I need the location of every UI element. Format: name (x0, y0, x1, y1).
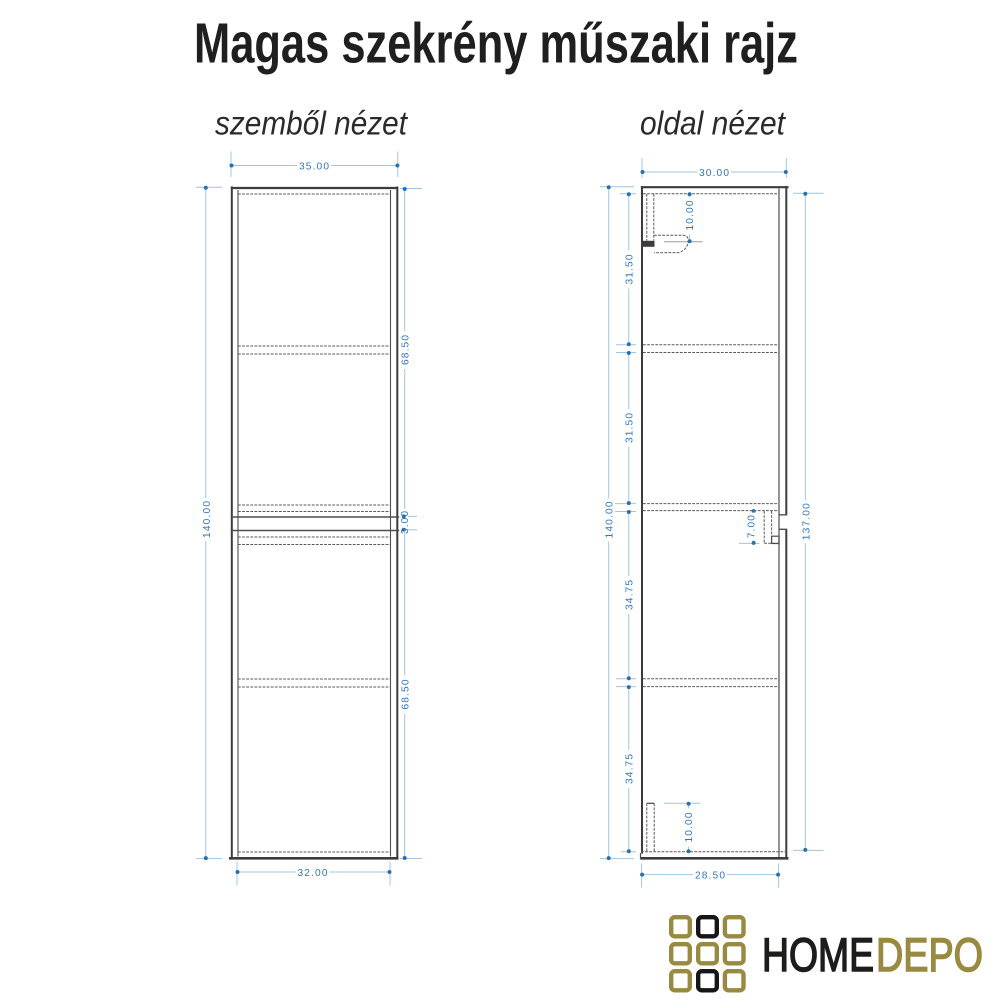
svg-text:34.75: 34.75 (624, 580, 635, 610)
svg-text:31.50: 31.50 (624, 413, 635, 443)
svg-text:140.00: 140.00 (202, 501, 213, 538)
svg-text:oldal nézet: oldal nézet (640, 105, 787, 142)
svg-text:32.00: 32.00 (298, 868, 328, 879)
svg-text:10.00: 10.00 (685, 200, 696, 230)
svg-text:31.50: 31.50 (624, 254, 635, 284)
svg-text:35.00: 35.00 (299, 162, 329, 173)
svg-text:68.50: 68.50 (401, 335, 412, 365)
svg-text:10.00: 10.00 (684, 812, 695, 842)
svg-text:30.00: 30.00 (699, 168, 729, 179)
svg-text:28.50: 28.50 (695, 871, 725, 882)
svg-text:137.00: 137.00 (801, 503, 812, 540)
svg-text:7.00: 7.00 (747, 515, 758, 538)
svg-text:DEPO: DEPO (876, 928, 983, 981)
svg-text:34.75: 34.75 (624, 754, 635, 784)
svg-text:szemből nézet: szemből nézet (215, 105, 409, 142)
svg-text:68.50: 68.50 (401, 679, 412, 709)
svg-text:HOME: HOME (762, 928, 874, 981)
svg-text:Magas szekrény műszaki rajz: Magas szekrény műszaki rajz (194, 12, 798, 76)
svg-text:140.00: 140.00 (605, 501, 616, 538)
